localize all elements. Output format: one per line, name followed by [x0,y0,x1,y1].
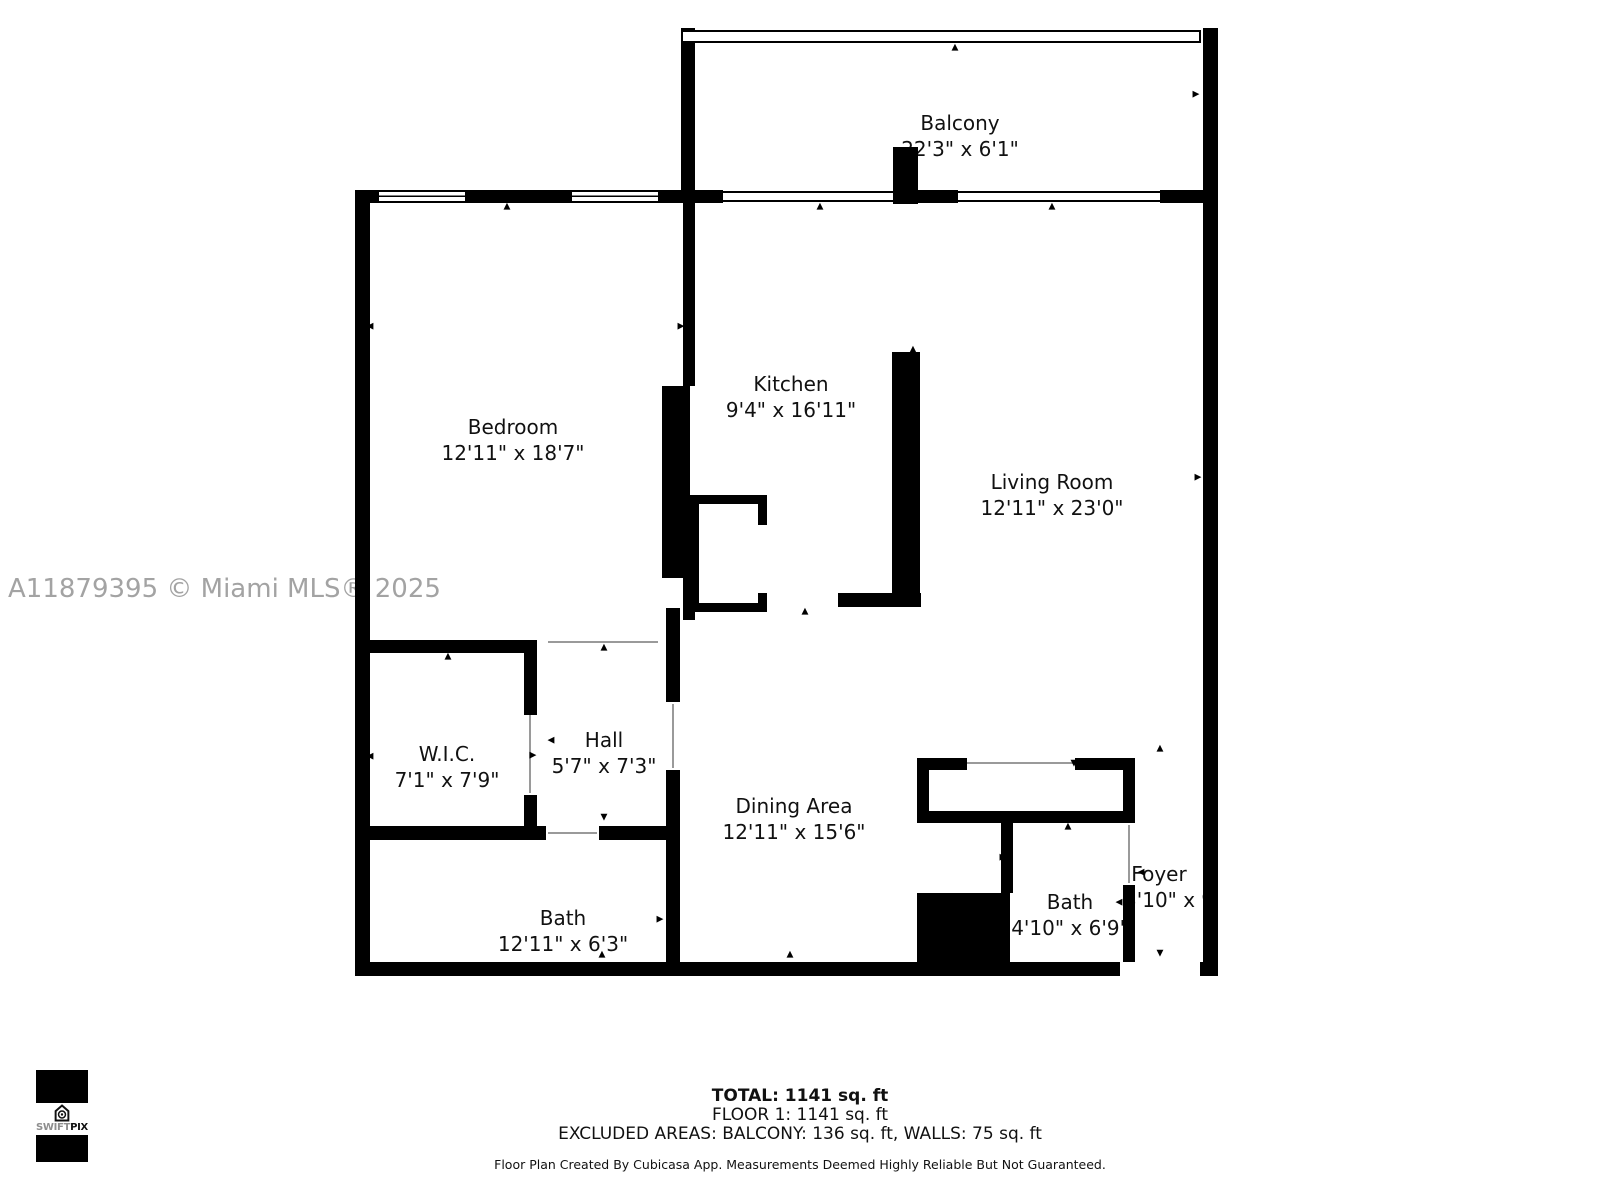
wall-island-bottom [690,603,767,612]
measure-arrow: ▶ [1195,474,1202,483]
measure-arrow: ▲ [802,608,809,617]
room-dims: 12'11" x 6'3" [498,931,628,957]
wall-kitchen-divider-upper [683,203,695,386]
wall-island-right-a [758,495,767,525]
logo-brand: SWIFTPIX [35,1122,89,1133]
window-2 [570,190,660,203]
measure-arrow: ▶ [530,752,537,761]
room-label-hall: Hall 5'7" x 7'3" [552,727,657,779]
measure-arrow: ▼ [1157,950,1164,959]
swiftpix-logo: SWIFTPIX [35,1070,89,1162]
wall-balcony-seg-a [918,190,958,203]
room-name: Balcony [901,110,1019,136]
logo-brand-swift: SWIFT [36,1122,70,1133]
room-label-bath-2: Bath 4'10" x 6'9" [1011,889,1129,941]
measure-arrow: ▶ [657,916,664,925]
room-label-wic: W.I.C. 7'1" x 7'9" [395,741,500,793]
measure-arrow: ▲ [1049,203,1056,212]
wall-island-right-b [758,593,767,612]
hall-dining-door [672,704,674,768]
hall-bath-door [548,832,597,834]
entry-gap [1120,962,1200,976]
bath2-door [1128,825,1130,883]
wall-balcony-seg-b [1160,190,1203,203]
measure-arrow: ◀ [1138,869,1145,878]
window-1 [377,190,467,203]
wall-top-a [355,190,378,203]
room-label-bedroom: Bedroom 12'11" x 18'7" [441,414,584,466]
room-dims: 5'7" x 7'3" [552,753,657,779]
disclaimer: Floor Plan Created By Cubicasa App. Meas… [0,1157,1600,1172]
closet-door [967,762,1075,764]
room-label-dining-area: Dining Area 12'11" x 15'6" [722,793,865,845]
measure-arrow: ▼ [601,814,608,823]
measure-arrow: ▲ [504,203,511,212]
room-name: Hall [552,727,657,753]
measure-arrow: ▲ [1065,823,1072,832]
measure-arrow: ▶ [1000,854,1007,863]
room-label-kitchen: Kitchen 9'4" x 16'11" [726,371,856,423]
room-dims: 12'11" x 15'6" [722,819,865,845]
room-label-bath-1: Bath 12'11" x 6'3" [498,905,628,957]
wall-kitchen-counter [662,386,690,578]
wall-outer-right [1203,28,1218,976]
wall-island-left [690,495,699,612]
room-name: W.I.C. [395,741,500,767]
room-name: Kitchen [726,371,856,397]
wall-balcony-stub [893,147,918,204]
measure-arrow: ▲ [599,951,606,960]
logo-brand-pix: PIX [70,1122,88,1133]
wall-outer-left [355,190,370,976]
logo-square-top [36,1070,88,1103]
measure-arrow: ▲ [787,951,794,960]
room-label-living-room: Living Room 12'11" x 23'0" [980,469,1123,521]
measure-arrow: ◀ [1116,899,1123,908]
wall-wic-right-a [524,640,537,715]
balcony-railing [681,30,1201,43]
measure-arrow: ◀ [367,323,374,332]
measure-arrow: ▼ [1071,760,1078,769]
room-dims: 7'1" x 7'9" [395,767,500,793]
wall-hall-dining-b [666,770,680,962]
measure-arrow: ▶ [1193,91,1200,100]
wall-top-b [466,190,571,203]
total-area: TOTAL: 1141 sq. ft [0,1087,1600,1106]
logo-square-bottom [36,1135,88,1162]
measure-arrow: ▲ [817,203,824,212]
measure-arrow: ▲ [445,653,452,662]
balcony-door-a [723,191,893,202]
wall-outer-bottom [355,962,1218,976]
wall-peninsula-v [892,352,920,607]
floorplan: A11879395 © Miami MLS® 2025 Balcony 22'3… [0,0,1600,1200]
mls-watermark: A11879395 © Miami MLS® 2025 [8,574,441,604]
wall-bath2-right [1123,885,1135,962]
area-summary: TOTAL: 1141 sq. ft FLOOR 1: 1141 sq. ft … [0,1087,1600,1144]
measure-arrow: ▲ [444,829,451,838]
room-dims: 12'11" x 18'7" [441,440,584,466]
room-dims: 9'4" x 16'11" [726,397,856,423]
room-name: Living Room [980,469,1123,495]
house-camera-icon [35,1104,89,1122]
room-dims: 12'11" x 23'0" [980,495,1123,521]
room-dims: 22'3" x 6'1" [901,136,1019,162]
room-name: Bath [1011,889,1129,915]
measure-arrow: ◀ [685,91,692,100]
floor-area: FLOOR 1: 1141 sq. ft [0,1106,1600,1125]
measure-arrow: ▲ [910,346,917,355]
room-dims: 4'10" x 6'9" [1011,915,1129,941]
wall-balcony-left [681,28,695,203]
measure-arrow: ◀ [548,737,555,746]
wall-peninsula-h [838,593,921,607]
measure-arrow: ▶ [678,323,685,332]
wall-island-top [690,495,767,504]
measure-arrow: ◀ [367,753,374,762]
measure-arrow: ▲ [1157,745,1164,754]
balcony-door-b [958,191,1160,202]
room-name: Dining Area [722,793,865,819]
wall-bath2-block [917,893,1010,962]
excluded-areas: EXCLUDED AREAS: BALCONY: 136 sq. ft, WAL… [0,1125,1600,1144]
measure-arrow: ▲ [952,44,959,53]
room-name: Bath [498,905,628,931]
wall-hall-dining-a [666,608,680,702]
measure-arrow: ▲ [601,644,608,653]
room-name: Bedroom [441,414,584,440]
room-label-balcony: Balcony 22'3" x 6'1" [901,110,1019,162]
wall-closet-bottom [917,811,1135,823]
